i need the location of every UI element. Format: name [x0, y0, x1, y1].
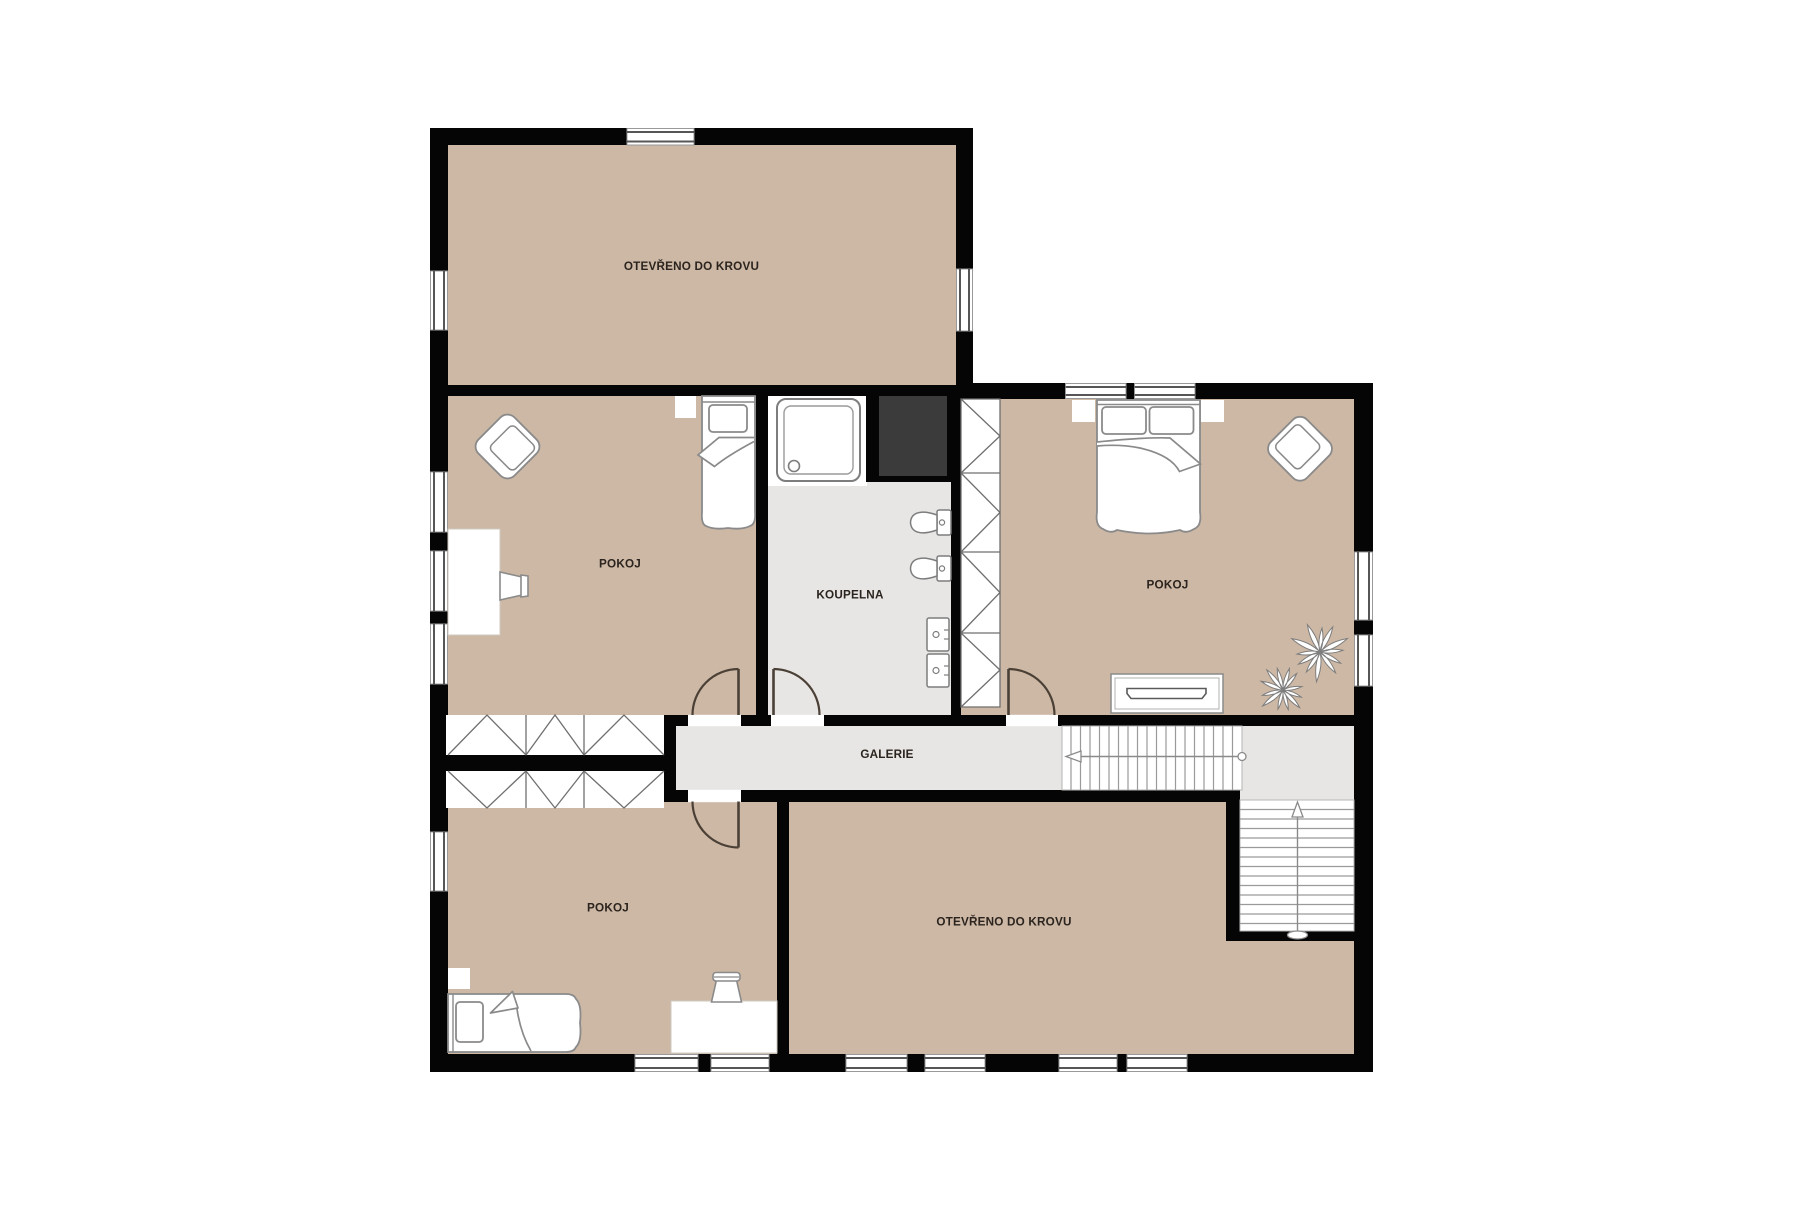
svg-text:KOUPELNA: KOUPELNA — [816, 589, 884, 602]
svg-text:OTEVŘENO DO KROVU: OTEVŘENO DO KROVU — [624, 260, 759, 273]
svg-text:GALERIE: GALERIE — [860, 748, 913, 761]
svg-text:OTEVŘENO DO KROVU: OTEVŘENO DO KROVU — [936, 916, 1071, 929]
svg-text:POKOJ: POKOJ — [1147, 579, 1189, 592]
svg-text:POKOJ: POKOJ — [599, 558, 641, 571]
svg-text:POKOJ: POKOJ — [587, 902, 629, 915]
